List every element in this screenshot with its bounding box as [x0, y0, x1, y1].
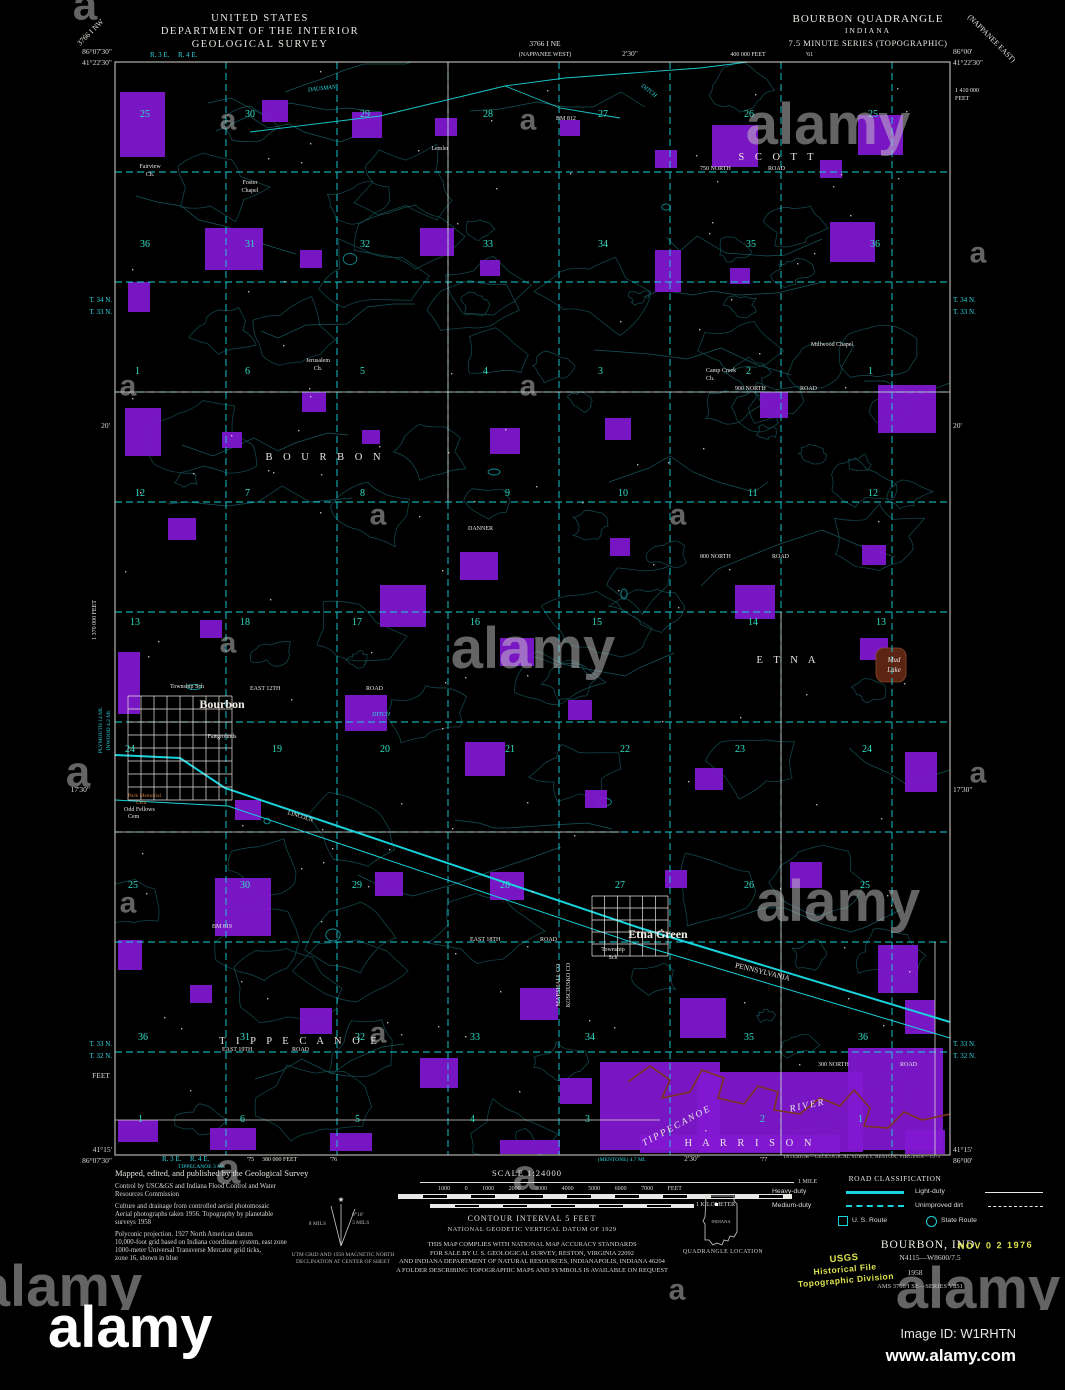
map-label: 41°15': [953, 1145, 973, 1154]
map-label: Chapel: [242, 188, 259, 194]
map-label: INWOOD 4.2 MI.: [106, 709, 112, 750]
contour-line: [533, 351, 575, 383]
building-dot: [527, 946, 528, 947]
map-label: ★: [338, 1195, 345, 1204]
alamy-logo: alamy: [48, 1294, 212, 1361]
map-label: '75: [247, 1157, 254, 1163]
map-patch: [362, 430, 380, 444]
section-number: 26: [744, 880, 754, 891]
building-dot: [703, 448, 704, 449]
map-label: FEET: [92, 1071, 110, 1080]
building-dot: [731, 299, 732, 300]
map-label: '77: [760, 1157, 767, 1163]
building-dot: [193, 473, 194, 474]
building-dot: [500, 991, 501, 992]
building-dot: [452, 828, 453, 829]
building-dot: [248, 291, 249, 292]
contour-line: [91, 879, 159, 923]
map-label: T. 34 N.: [89, 296, 112, 304]
building-dot: [148, 656, 149, 657]
map-patch: [222, 432, 242, 448]
indiana-label: INDIANA: [711, 1219, 731, 1224]
contour-line: [632, 963, 676, 995]
map-patch: [790, 862, 822, 888]
building-dot: [637, 464, 638, 465]
agency-line: UNITED STATES: [118, 12, 402, 25]
contour-line: [250, 642, 290, 667]
credits-projection: Polyconic projection. 1927 North America…: [115, 1231, 287, 1263]
map-label: INTERIOR—GEOLOGICAL SURVEY, RESTON, VIRG…: [784, 1154, 941, 1160]
contour-line: [466, 220, 495, 241]
map-label: ROAD: [768, 166, 786, 172]
credits-control: Control by USC&GS and Indiana Flood Cont…: [115, 1183, 276, 1199]
credit-line: zone 16, shown in blue: [115, 1255, 287, 1263]
map-patch: [520, 988, 558, 1020]
building-dot: [442, 728, 443, 729]
contour-line: [698, 322, 784, 372]
building-dot: [536, 486, 537, 487]
map-label: 3766 I NE: [529, 39, 561, 48]
building-dot: [906, 111, 907, 112]
section-number: 5: [355, 1114, 360, 1125]
building-dot: [474, 501, 475, 502]
building-dot: [797, 263, 798, 264]
pond-outline: [488, 469, 500, 475]
building-dot: [678, 607, 679, 608]
building-dot: [270, 599, 271, 600]
section-number: 19: [272, 744, 282, 755]
contour-line: [534, 1042, 589, 1081]
map-label: 8 MILS: [309, 1221, 326, 1227]
building-dot: [442, 570, 443, 571]
building-dot: [527, 675, 528, 676]
map-patch: [125, 408, 161, 456]
building-dot: [891, 905, 892, 906]
building-dot: [273, 472, 274, 473]
credit-line: surveys 1958: [115, 1219, 273, 1227]
map-patch: [375, 872, 403, 896]
map-label: 300 NORTH: [818, 1062, 849, 1068]
contour-line: [329, 1020, 392, 1077]
contour-line: [706, 389, 762, 424]
section-number: 32: [360, 239, 370, 250]
building-dot: [848, 998, 849, 999]
map-patch: [200, 620, 222, 638]
section-number: 35: [744, 1032, 754, 1043]
building-dot: [833, 186, 834, 187]
building-dot: [699, 329, 700, 330]
map-patch: [905, 1130, 945, 1154]
building-dot: [465, 677, 466, 678]
building-dot: [132, 398, 133, 399]
building-dot: [451, 373, 452, 374]
credit-line: 10,000-foot grid based on Indiana coordi…: [115, 1239, 287, 1247]
map-label: BM 819: [212, 924, 232, 930]
section-number: 25: [860, 880, 870, 891]
building-dot: [268, 158, 269, 159]
building-dot: [301, 162, 302, 163]
building-dot: [491, 120, 492, 121]
building-dot: [505, 429, 506, 430]
map-label: T. 32 N.: [89, 1052, 112, 1060]
section-number: 30: [240, 880, 250, 891]
building-dot: [242, 825, 243, 826]
us-route-label: U. S. Route: [852, 1217, 887, 1224]
contour-line: [573, 510, 608, 540]
contour-line: [393, 424, 465, 480]
contour-line: [346, 650, 368, 668]
legend-light-duty-line: [985, 1192, 1043, 1193]
building-dot: [759, 353, 760, 354]
building-dot: [298, 430, 299, 431]
section-number: 12: [135, 488, 145, 499]
map-patch: [490, 428, 520, 454]
section-number: 15: [592, 617, 602, 628]
agency-line: DEPARTMENT OF THE INTERIOR: [118, 25, 402, 38]
contour-line: [331, 482, 410, 547]
map-label: 41°15': [93, 1145, 113, 1154]
map-label: Ch.: [314, 366, 323, 372]
building-dot: [816, 804, 817, 805]
alamy-url: www.alamy.com: [886, 1346, 1016, 1366]
map-label: 400 000 FEET: [730, 52, 766, 58]
section-number: 24: [862, 744, 872, 755]
building-dot: [878, 521, 879, 522]
building-dot: [620, 321, 621, 322]
section-number: 25: [128, 880, 138, 891]
map-patch: [610, 538, 630, 556]
stream-line: [594, 348, 791, 375]
map-patch: [460, 552, 498, 580]
stream-line: [470, 92, 645, 111]
building-dot: [729, 569, 730, 570]
building-dot: [844, 947, 845, 948]
quadrangle-series: 7.5 MINUTE SERIES (TOPOGRAPHIC): [718, 37, 1018, 49]
map-label: Foster: [243, 180, 258, 186]
section-number: 29: [352, 880, 362, 891]
stream-line: [513, 651, 674, 676]
building-dot: [532, 891, 533, 892]
map-label: Ch.: [146, 172, 155, 178]
building-dot: [883, 1025, 884, 1026]
building-dot: [881, 818, 882, 819]
section-number: 13: [130, 617, 140, 628]
map-label: 86°07'30": [82, 47, 112, 56]
scale-feet-numbers: 1000 0 1000 2000 3000 4000 5000 6000 700…: [360, 1186, 760, 1192]
map-label: DITCH: [639, 83, 658, 100]
contour-line: [798, 445, 826, 465]
map-patch: [500, 638, 534, 666]
map-label: 380 000 FEET: [262, 1157, 298, 1163]
building-dot: [310, 143, 311, 144]
quad-location-marker: [715, 1203, 718, 1206]
map-label: Ch.: [706, 376, 715, 382]
usgs-agency-header: UNITED STATESDEPARTMENT OF THE INTERIORG…: [118, 12, 402, 51]
legend-unimproved-line: [988, 1206, 1043, 1207]
map-label: 2'30": [684, 1154, 700, 1163]
map-patch: [262, 100, 288, 122]
map-label: 800 NORTH: [700, 554, 731, 560]
map-patch: [120, 92, 165, 157]
building-dot: [465, 1036, 466, 1037]
map-label: Jerusalem: [306, 358, 330, 364]
contour-line: [541, 660, 595, 700]
map-patch: [300, 1008, 332, 1034]
map-label: Cem: [136, 800, 147, 806]
map-patch: [300, 250, 322, 268]
building-dot: [806, 694, 807, 695]
building-dot: [457, 223, 458, 224]
map-patch: [128, 282, 150, 312]
building-dot: [574, 835, 575, 836]
map-label: EAST 19TH: [222, 1047, 253, 1053]
section-number: 2: [746, 366, 751, 377]
building-dot: [284, 281, 285, 282]
building-dot: [283, 345, 284, 346]
building-dot: [898, 178, 899, 179]
contour-line: [534, 257, 651, 335]
map-patch: [480, 260, 500, 276]
stream-line: [666, 236, 822, 256]
contour-line: [354, 144, 452, 220]
map-label: 17'30": [71, 785, 90, 794]
map-patch: [168, 518, 196, 540]
pond-outline: [662, 204, 671, 210]
building-dot: [387, 1022, 388, 1023]
map-patch: [302, 392, 326, 412]
section-number: 34: [598, 239, 608, 250]
section-number: 1: [868, 366, 873, 377]
scale-bar-mile: [420, 1182, 794, 1183]
legend-heavy-duty-label: Heavy-duty: [772, 1188, 806, 1195]
map-label: Sch: [609, 955, 618, 961]
scale-label: SCALE 1:24000: [427, 1168, 627, 1178]
state-route-label: State Route: [941, 1217, 977, 1224]
contour-line: [709, 60, 774, 112]
stream-line: [285, 53, 437, 92]
map-label: Mud: [887, 656, 901, 664]
section-number: 36: [858, 1032, 868, 1043]
map-label: (MENTONE) 4.7 MI.: [598, 1156, 647, 1163]
map-label: T I P P E C A N O E: [219, 1036, 381, 1047]
legend-light-duty-label: Light-duty: [915, 1188, 945, 1195]
section-number: 1: [135, 366, 140, 377]
building-dot: [379, 446, 380, 447]
building-dot: [418, 150, 419, 151]
map-label: 86°07'30": [82, 1156, 112, 1165]
mapped-by-line: Mapped, edited, and published by the Geo…: [115, 1168, 415, 1178]
building-dot: [321, 921, 322, 922]
section-number: 27: [615, 880, 625, 891]
compliance-line: A FOLDER DESCRIBING TOPOGRAPHIC MAPS AND…: [332, 1267, 732, 1276]
map-label: B O U R B O N: [265, 452, 384, 463]
contour-line: [385, 686, 466, 743]
stream-line: [168, 486, 352, 506]
legend-medium-duty-label: Medium-duty: [772, 1202, 811, 1209]
contour-line: [792, 940, 827, 970]
building-dot: [527, 802, 528, 803]
building-dot: [755, 94, 756, 95]
building-dot: [614, 1027, 615, 1028]
contour-line: [646, 541, 686, 568]
building-dot: [799, 1064, 800, 1065]
section-number: 20: [380, 744, 390, 755]
contour-line: [787, 342, 854, 388]
quadrangle-location-caption: QUADRANGLE LOCATION: [668, 1249, 778, 1255]
contour-line: [468, 328, 528, 373]
section-number: 11: [748, 488, 758, 499]
quadrangle-state: INDIANA: [718, 25, 1018, 37]
map-patch: [568, 700, 592, 720]
map-patch: [665, 870, 687, 888]
legend-heavy-duty-line: [846, 1191, 904, 1194]
scale-bar-km: [430, 1204, 694, 1208]
building-dot: [445, 682, 446, 683]
map-patch: [210, 1128, 256, 1150]
map-patch: [435, 118, 457, 136]
map-label: ROAD: [772, 554, 790, 560]
contour-line: [567, 392, 592, 412]
road-classification-title: ROAD CLASSIFICATION: [770, 1174, 1020, 1183]
contour-line: [849, 454, 872, 471]
contour-line: [529, 745, 621, 802]
map-label: T. 33 N.: [953, 308, 976, 316]
building-dot: [419, 516, 420, 517]
map-label: MARSHALL CO: [556, 963, 562, 1006]
building-dot: [301, 868, 302, 869]
map-patch: [760, 392, 788, 418]
section-number: 31: [245, 239, 255, 250]
map-label: Lake: [886, 666, 901, 674]
section-number: 8: [360, 488, 365, 499]
topo-map-canvas: 2530292827262536313233343536165432112789…: [0, 0, 1065, 1310]
map-label: Lemler: [431, 146, 448, 152]
building-dot: [705, 1130, 706, 1131]
section-number: 28: [500, 880, 510, 891]
contour-line: [308, 792, 395, 866]
pond-outline: [343, 253, 357, 264]
credit-line: Resources Commission: [115, 1191, 276, 1199]
building-dot: [309, 388, 310, 389]
building-dot: [321, 474, 322, 475]
stream-line: [261, 304, 415, 338]
section-number: 6: [245, 366, 250, 377]
building-dot: [709, 233, 710, 234]
stream-line: [255, 1044, 404, 1079]
contour-line: [427, 280, 519, 330]
map-label: R. 4 E.: [178, 51, 198, 59]
building-dot: [909, 971, 910, 972]
section-number: 1: [138, 1114, 143, 1125]
section-number: 24: [125, 744, 135, 755]
map-patch: [655, 150, 677, 168]
building-dot: [448, 452, 449, 453]
datum-line: NATIONAL GEODETIC VERTICAL DATUM OF 1929: [382, 1226, 682, 1233]
map-label: ROAD: [900, 1062, 918, 1068]
section-number: 16: [470, 617, 480, 628]
map-label: T. 33 N.: [89, 1040, 112, 1048]
building-dot: [897, 88, 898, 89]
state-route-symbol: [926, 1216, 937, 1227]
section-number: 18: [240, 617, 250, 628]
building-dot: [323, 862, 324, 863]
contour-line: [253, 297, 336, 366]
contour-line: [305, 902, 396, 973]
section-number: 4: [483, 366, 488, 377]
building-dot: [712, 222, 713, 223]
contour-line: [461, 292, 490, 315]
quadrangle-title: BOURBON QUADRANGLE: [718, 13, 1018, 25]
map-patch: [420, 1058, 458, 1088]
building-dot: [389, 849, 390, 850]
contour-line: [851, 679, 886, 703]
map-patch: [560, 120, 580, 136]
section-number: 36: [140, 239, 150, 250]
credit-line: Control by USC&GS and Indiana Flood Cont…: [115, 1183, 276, 1191]
map-patch: [380, 585, 426, 627]
contour-interval-line: CONTOUR INTERVAL 5 FEET: [432, 1214, 632, 1223]
stock-photo-page: 2530292827262536313233343536165432112789…: [0, 0, 1065, 1390]
map-label: EAST 18TH: [470, 937, 501, 943]
contour-line: [189, 308, 256, 355]
section-number: 30: [245, 109, 255, 120]
map-label: '76: [330, 1157, 337, 1163]
image-id-text: Image ID: W1RHTN: [900, 1326, 1016, 1341]
building-dot: [158, 641, 159, 642]
map-label: '61: [806, 52, 813, 58]
map-label: Cem: [128, 814, 140, 820]
agency-line: GEOLOGICAL SURVEY: [118, 38, 402, 51]
mud-lake-area: [876, 648, 906, 682]
map-label: 86°00': [953, 1156, 973, 1165]
map-patch: [820, 160, 842, 178]
map-label: Etna Green: [628, 927, 688, 941]
building-dot: [740, 717, 741, 718]
map-label: ROAD: [366, 686, 384, 692]
date-received-stamp: NOV 0 2 1976: [958, 1239, 1065, 1251]
map-label: Camp Creek: [706, 368, 736, 374]
building-dot: [401, 1034, 402, 1035]
map-label: 3766 I NW: [75, 16, 106, 47]
building-dot: [688, 781, 689, 782]
building-dot: [231, 435, 232, 436]
map-patch: [500, 1140, 560, 1154]
contour-line: [319, 239, 430, 308]
building-dot: [181, 1028, 182, 1029]
section-number: 25: [140, 109, 150, 120]
building-dot: [320, 71, 321, 72]
map-label: Millwood Chapel: [811, 342, 853, 348]
contour-line: [757, 1009, 776, 1022]
section-number: 9: [505, 488, 510, 499]
building-dot: [696, 155, 697, 156]
section-number: 26: [744, 109, 754, 120]
section-number: 28: [483, 109, 493, 120]
section-number: 36: [870, 239, 880, 250]
building-dot: [371, 652, 372, 653]
building-dot: [589, 1020, 590, 1021]
building-dot: [582, 502, 583, 503]
building-dot: [904, 683, 905, 684]
building-dot: [814, 253, 815, 254]
contour-line: [780, 1034, 821, 1058]
indiana-outline: INDIANA: [700, 1194, 746, 1248]
credit-line: Culture and drainage from controlled aer…: [115, 1203, 273, 1211]
map-label: DAUSMAN: [307, 84, 337, 93]
map-patch: [118, 940, 142, 970]
contour-line: [770, 258, 814, 287]
building-dot: [780, 888, 781, 889]
